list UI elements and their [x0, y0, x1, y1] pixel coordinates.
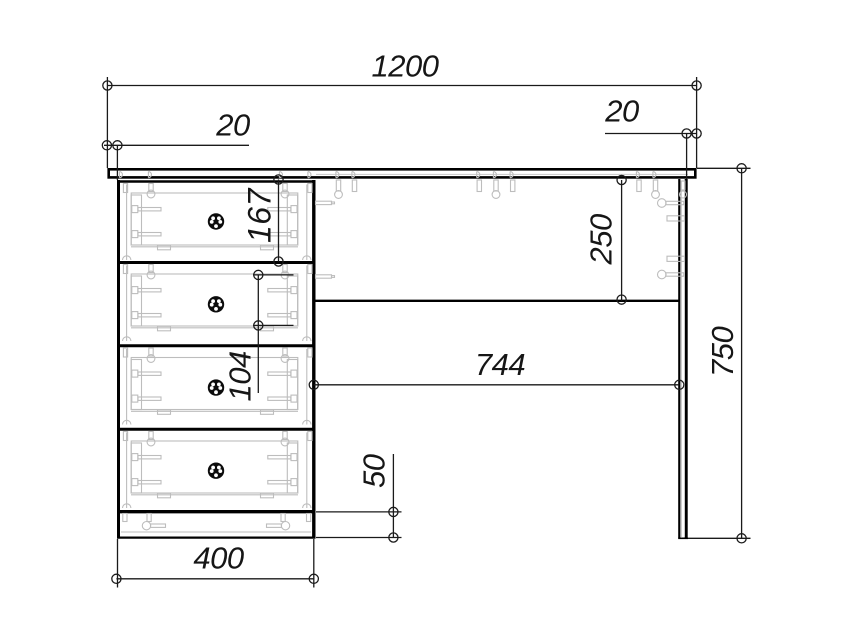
svg-text:20: 20 [604, 94, 639, 129]
svg-text:50: 50 [357, 454, 392, 488]
svg-text:1200: 1200 [372, 49, 439, 84]
svg-text:250: 250 [584, 214, 619, 265]
svg-text:20: 20 [215, 108, 250, 143]
svg-text:104: 104 [223, 351, 258, 401]
svg-text:167: 167 [242, 187, 278, 243]
svg-text:400: 400 [193, 541, 243, 576]
svg-text:744: 744 [475, 347, 525, 382]
svg-text:750: 750 [705, 327, 740, 377]
